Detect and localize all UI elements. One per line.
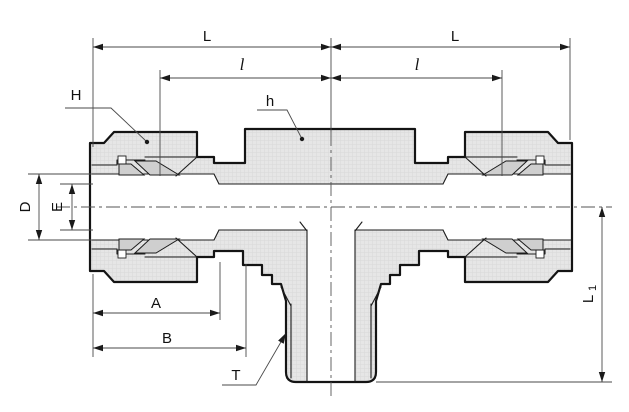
dimension-label-A: A [151,295,161,312]
dimension-label-L-right: L [451,28,459,45]
dimension-label-B: B [162,330,172,347]
dimension-label-D: D [17,201,34,212]
leader-dot [145,140,149,144]
dimension-label-l-right: l [415,55,420,74]
dimension-label-E: E [49,202,66,212]
dimension-label-l-left: l [240,55,245,74]
dimension-label-L1-base: L [580,295,597,303]
callout-label-h: h [266,93,274,110]
tee-fitting-section-drawing: L L l l H h D E [0,0,629,412]
drawing-background [0,0,629,412]
leader-dot [300,137,304,141]
callout-label-T: T [231,367,240,384]
callout-label-H: H [71,87,82,104]
dimension-label-L1-subscript: 1 [587,285,599,291]
technical-drawing-page: L L l l H h D E [0,0,629,412]
dimension-label-L-left: L [203,28,211,45]
